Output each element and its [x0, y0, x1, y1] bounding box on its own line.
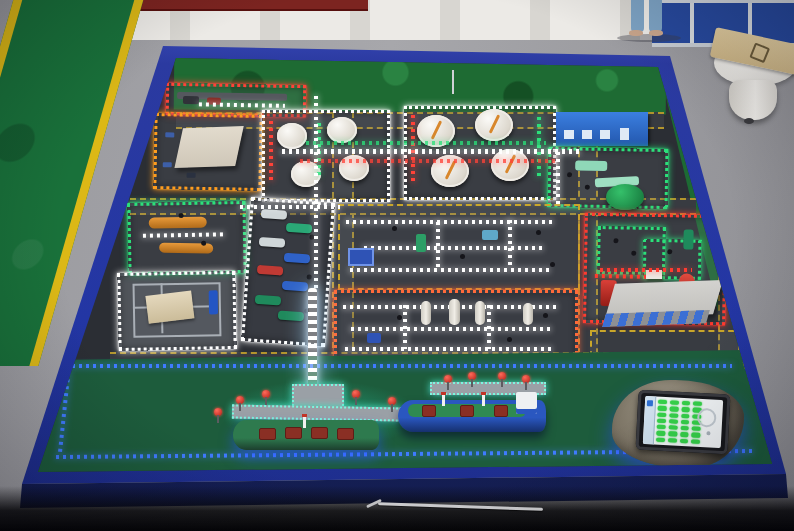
- blue-led-strip-top: [72, 364, 732, 368]
- manifold: [494, 405, 508, 417]
- status-indicator: [657, 412, 666, 417]
- red-led-pipe: [269, 121, 273, 183]
- pump-skid: [255, 295, 282, 306]
- deck-cargo: [259, 428, 276, 440]
- person-leg: [631, 0, 644, 32]
- control-tablet: [635, 390, 730, 455]
- status-indicator: [691, 439, 700, 444]
- status-indicator: [680, 432, 689, 437]
- status-indicator: [668, 432, 677, 437]
- valve: [179, 213, 184, 218]
- jetty-trestle-led: [308, 288, 317, 392]
- manifold: [460, 405, 474, 417]
- valve: [543, 313, 548, 318]
- person-leg: [649, 0, 662, 32]
- valve: [201, 241, 206, 246]
- valve: [567, 172, 572, 177]
- blue-gate: [209, 290, 218, 314]
- pedestal-column: [729, 80, 777, 120]
- teal-pump: [482, 230, 498, 240]
- led-connector: [240, 205, 340, 209]
- window: [582, 130, 592, 139]
- valve: [585, 185, 590, 190]
- person-shadow: [617, 34, 681, 42]
- valve: [460, 254, 465, 259]
- pump-skid: [261, 209, 288, 220]
- valve: [307, 274, 312, 279]
- ship1-hull: [233, 420, 379, 450]
- kingpost: [482, 394, 485, 406]
- person-legs: [629, 0, 669, 40]
- status-indicator: [692, 427, 701, 432]
- gauge-needle: [445, 160, 456, 179]
- status-indicator: [657, 418, 666, 423]
- pump-skid: [284, 253, 311, 264]
- gauge-needle: [431, 120, 442, 139]
- manifold: [422, 405, 436, 417]
- green-led-pipe: [537, 117, 541, 177]
- main-led-pipeline-vertical: [314, 96, 318, 292]
- car: [187, 173, 196, 178]
- zone-warehouse: [153, 113, 262, 191]
- truck: [183, 96, 199, 104]
- basin-cover: [145, 290, 194, 323]
- deck-cargo: [337, 428, 354, 440]
- led-pipe: [346, 220, 556, 224]
- tablet-app-icon: [647, 400, 653, 406]
- floating-roof-tank: [475, 109, 513, 141]
- pump-skid: [282, 281, 309, 292]
- mooring-dolphin: [352, 390, 360, 398]
- status-indicator: [681, 413, 690, 418]
- tablet-gauge-circle: [697, 408, 717, 428]
- red-led-run: [300, 159, 556, 163]
- maroon-wall-strip: [106, 0, 368, 11]
- pump-skid: [257, 265, 284, 276]
- zone-bullet-tanks: [127, 201, 246, 275]
- gauge-needle: [505, 154, 516, 173]
- zone-wastewater-basin: [117, 271, 236, 351]
- floor-shadow: [0, 486, 794, 531]
- mooring-dolphin: [388, 397, 396, 405]
- tablet-sidebar: [643, 396, 656, 445]
- car: [163, 162, 172, 167]
- storage-tank: [327, 117, 357, 143]
- valve: [392, 226, 397, 231]
- gauge-needle: [489, 114, 500, 133]
- ship-mast: [303, 416, 306, 428]
- gantry-led-pipe: [199, 102, 285, 108]
- equipment: [667, 249, 672, 254]
- led-pipe: [508, 220, 512, 268]
- zone-pump-bay: [241, 197, 335, 347]
- status-indicator: [681, 401, 690, 406]
- status-indicator: [669, 419, 678, 424]
- bullet-tank: [149, 217, 207, 229]
- tablet-gauge-dot: [706, 431, 710, 435]
- status-indicator: [693, 402, 702, 407]
- pump-skid: [278, 310, 305, 321]
- green-dome-tank: [606, 184, 644, 210]
- led-connector: [556, 152, 560, 206]
- status-indicator: [656, 431, 665, 436]
- mooring-dolphin: [444, 375, 452, 383]
- door: [620, 128, 629, 140]
- red-led-pipe: [600, 268, 692, 272]
- mooring-dolphin: [498, 372, 506, 380]
- valve: [507, 337, 512, 342]
- control-panel: [348, 248, 374, 266]
- deck-cargo: [285, 427, 302, 439]
- mooring-dolphin: [522, 375, 530, 383]
- green-cabinet: [416, 234, 426, 252]
- status-indicator: [679, 439, 688, 444]
- valve: [550, 262, 555, 267]
- status-indicator: [681, 407, 690, 412]
- led-pipe: [351, 327, 551, 331]
- pump-skid: [286, 223, 313, 234]
- blue-building: [556, 112, 648, 146]
- led-pipe: [436, 222, 440, 268]
- person-foot: [629, 30, 643, 36]
- zone-small-tank-farm: [262, 110, 390, 202]
- status-indicator: [668, 425, 677, 430]
- process-column: [475, 301, 485, 325]
- status-indicator: [669, 407, 678, 412]
- pedestal-caster: [744, 118, 754, 124]
- building-window-band: [602, 310, 710, 327]
- tablet-screen: [643, 396, 723, 448]
- valve: [536, 230, 541, 235]
- photo-scale-model-terminal: [0, 0, 794, 531]
- led-pipe: [487, 305, 491, 349]
- mooring-dolphin: [468, 372, 476, 380]
- mooring-dolphin: [214, 408, 222, 416]
- jetty1-walkway: [232, 405, 402, 422]
- red-led-pipe: [411, 115, 415, 181]
- ship-blue-carrier: [398, 400, 546, 432]
- status-indicator: [680, 420, 689, 425]
- ship-green-tanker: [233, 420, 379, 450]
- led-pipe: [364, 246, 544, 250]
- zone-central-process: [338, 204, 580, 290]
- board-drawing: [749, 42, 770, 63]
- green-equipment: [575, 160, 607, 171]
- tablet-indicator-grid: [656, 400, 702, 444]
- led-pipe: [345, 347, 555, 351]
- blue-skid: [367, 333, 381, 343]
- status-indicator: [658, 406, 667, 411]
- status-indicator: [657, 425, 666, 430]
- status-indicator: [656, 437, 665, 442]
- valve: [397, 315, 402, 320]
- equipment: [613, 238, 618, 243]
- led-pipe: [350, 268, 550, 272]
- status-indicator: [669, 413, 678, 418]
- process-column: [523, 303, 533, 325]
- kingpost: [442, 394, 445, 406]
- flag-pole: [452, 70, 454, 94]
- status-indicator: [658, 400, 667, 405]
- status-indicator: [668, 438, 677, 443]
- ship2-superstructure: [516, 392, 537, 414]
- mooring-dolphin: [262, 390, 270, 398]
- status-indicator: [691, 433, 700, 438]
- storage-tank: [277, 123, 307, 149]
- green-led-run: [306, 141, 546, 145]
- mooring-dolphin: [236, 396, 244, 404]
- car: [165, 132, 174, 137]
- deck-cargo: [311, 427, 328, 439]
- partition-post: [690, 3, 694, 43]
- pump-skid: [259, 237, 286, 248]
- person-foot: [649, 30, 663, 36]
- status-indicator: [670, 400, 679, 405]
- process-column: [421, 301, 431, 325]
- process-column: [449, 299, 460, 325]
- white-led-pipe: [143, 232, 227, 237]
- window: [600, 130, 610, 139]
- green-vessel: [683, 229, 693, 249]
- window: [564, 130, 574, 139]
- led-pipe: [403, 305, 407, 349]
- status-indicator: [680, 426, 689, 431]
- main-led-pipeline-horizontal: [282, 149, 582, 154]
- warehouse-building: [174, 126, 243, 168]
- equipment: [631, 251, 636, 256]
